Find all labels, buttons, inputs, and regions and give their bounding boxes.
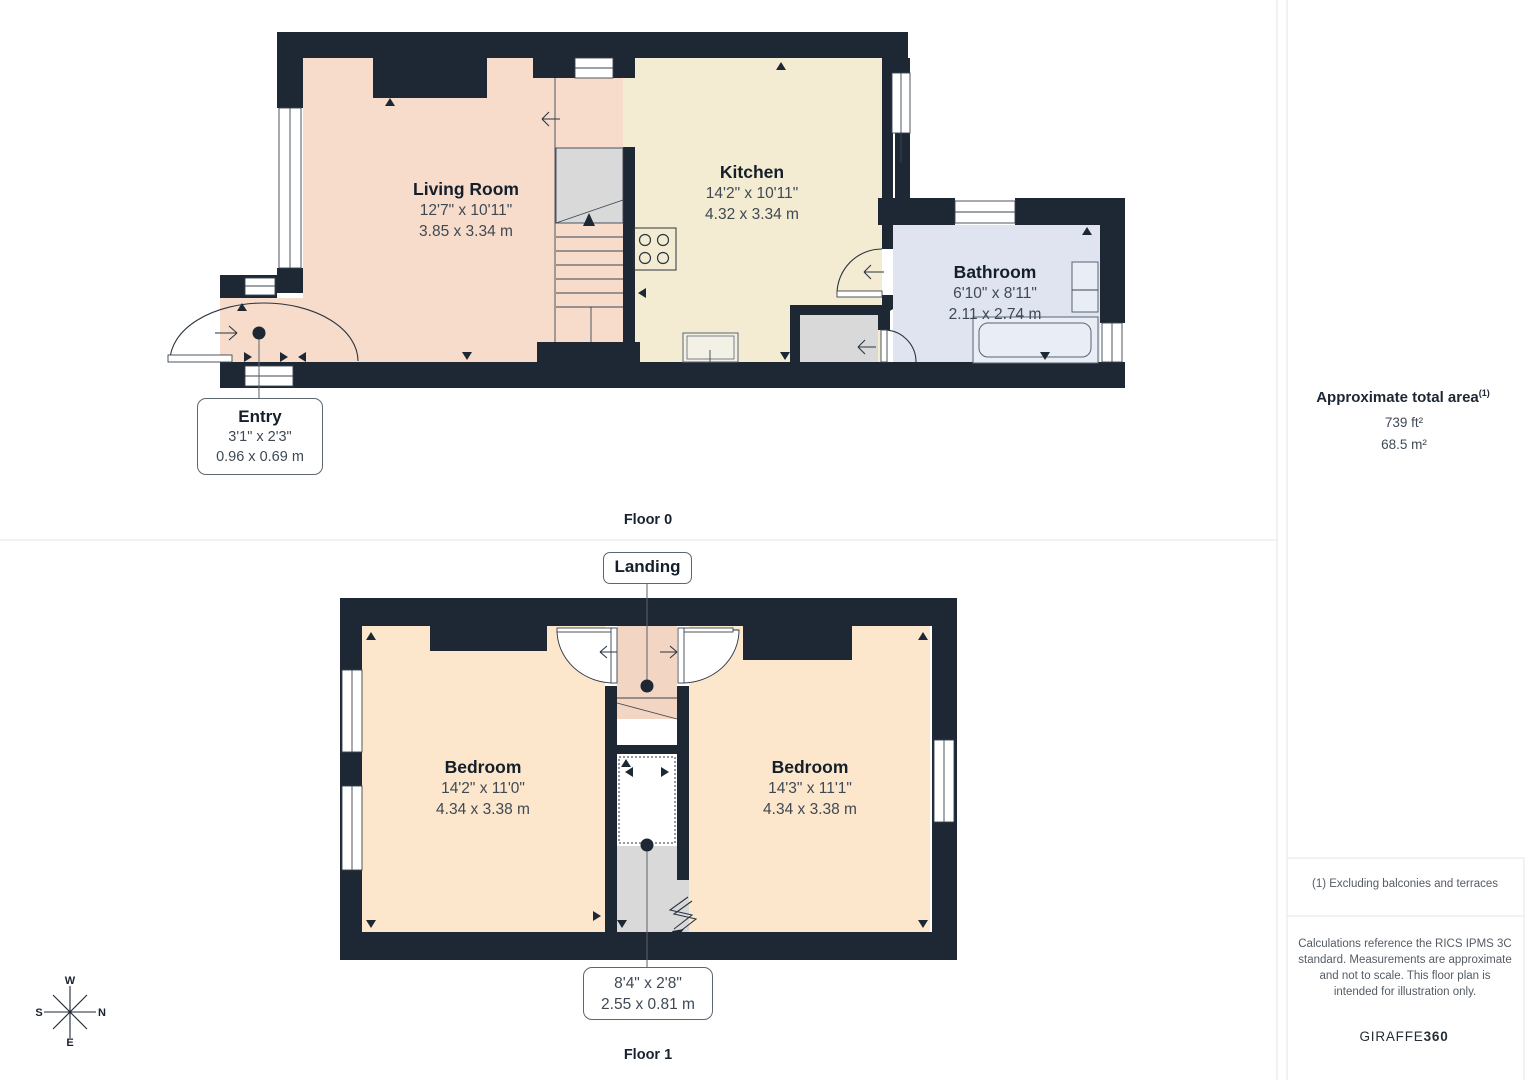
stairs-marker-dot [641,839,654,852]
room-name: Landing [614,557,680,576]
bedroom-right-label: Bedroom 14'3" x 11'1" 4.34 x 3.38 m [763,756,857,821]
room-name: Bedroom [763,756,857,779]
stairs-callout: 8'4" x 2'8" 2.55 x 0.81 m [583,967,713,1020]
bathroom-label: Bathroom 6'10" x 8'11" 2.11 x 2.74 m [949,261,1042,326]
room-name: Living Room [413,178,519,201]
total-area-title-text: Approximate total area [1316,389,1479,406]
room-dim-metric: 4.34 x 3.38 m [763,800,857,821]
living-room-label: Living Room 12'7" x 10'11" 3.85 x 3.34 m [413,178,519,243]
room-dim-metric: 4.32 x 3.34 m [705,205,799,226]
room-dim-imperial: 3'1" x 2'3" [198,428,322,448]
room-dim-imperial: 14'2" x 11'0" [436,779,530,800]
stairs-void [619,757,675,843]
compass-west-label: W [65,975,75,987]
floorplan-page: Living Room 12'7" x 10'11" 3.85 x 3.34 m… [0,0,1527,1080]
room-dim-metric: 2.55 x 0.81 m [584,995,712,1016]
room-dim-imperial: 14'2" x 10'11" [705,184,799,205]
room-name: Kitchen [705,161,799,184]
total-area-metric: 68.5 m² [1381,437,1427,452]
area-footnote: (1) Excluding balconies and terraces [1312,878,1498,890]
compass-north-label: N [98,1007,106,1019]
room-dim-imperial: 12'7" x 10'11" [413,201,519,222]
brand-name: GIRAFFE [1359,1029,1423,1044]
room-name: Bathroom [949,261,1042,284]
kitchen-sink-icon [683,333,738,362]
floor0-plan [168,32,1125,398]
floor1-plan [340,583,957,967]
floor1-label: Floor 1 [624,1047,672,1063]
room-name: Bedroom [436,756,530,779]
room-dim-metric: 0.96 x 0.69 m [198,448,322,468]
brand-suffix: 360 [1424,1029,1449,1044]
room-dim-metric: 3.85 x 3.34 m [413,222,519,243]
compass-east-label: E [66,1037,73,1049]
bedroom-left-label: Bedroom 14'2" x 11'0" 4.34 x 3.38 m [436,756,530,821]
kitchen-label: Kitchen 14'2" x 10'11" 4.32 x 3.34 m [705,161,799,226]
room-dim-metric: 2.11 x 2.74 m [949,305,1042,326]
room-dim-imperial: 8'4" x 2'8" [584,974,712,995]
floor0-label: Floor 0 [624,512,672,528]
room-dim-metric: 4.34 x 3.38 m [436,800,530,821]
compass-icon [44,986,96,1038]
compass-south-label: S [35,1007,42,1019]
landing-callout: Landing [603,552,692,584]
footnote-marker: (1) [1479,388,1490,398]
total-area-title: Approximate total area(1) [1316,388,1490,406]
vestibule-floor [800,315,878,362]
landing-marker-dot [641,680,654,693]
room-dim-imperial: 14'3" x 11'1" [763,779,857,800]
total-area-imperial: 739 ft² [1385,415,1423,430]
brand-logo: GIRAFFE360 [1359,1029,1448,1044]
disclaimer-text: Calculations reference the RICS IPMS 3C … [1297,937,1513,1000]
entry-callout: Entry 3'1" x 2'3" 0.96 x 0.69 m [197,398,323,475]
bathroom-sink-icon [1072,262,1098,312]
entry-marker-dot [253,327,266,340]
room-dim-imperial: 6'10" x 8'11" [949,284,1042,305]
room-name: Entry [198,406,322,428]
